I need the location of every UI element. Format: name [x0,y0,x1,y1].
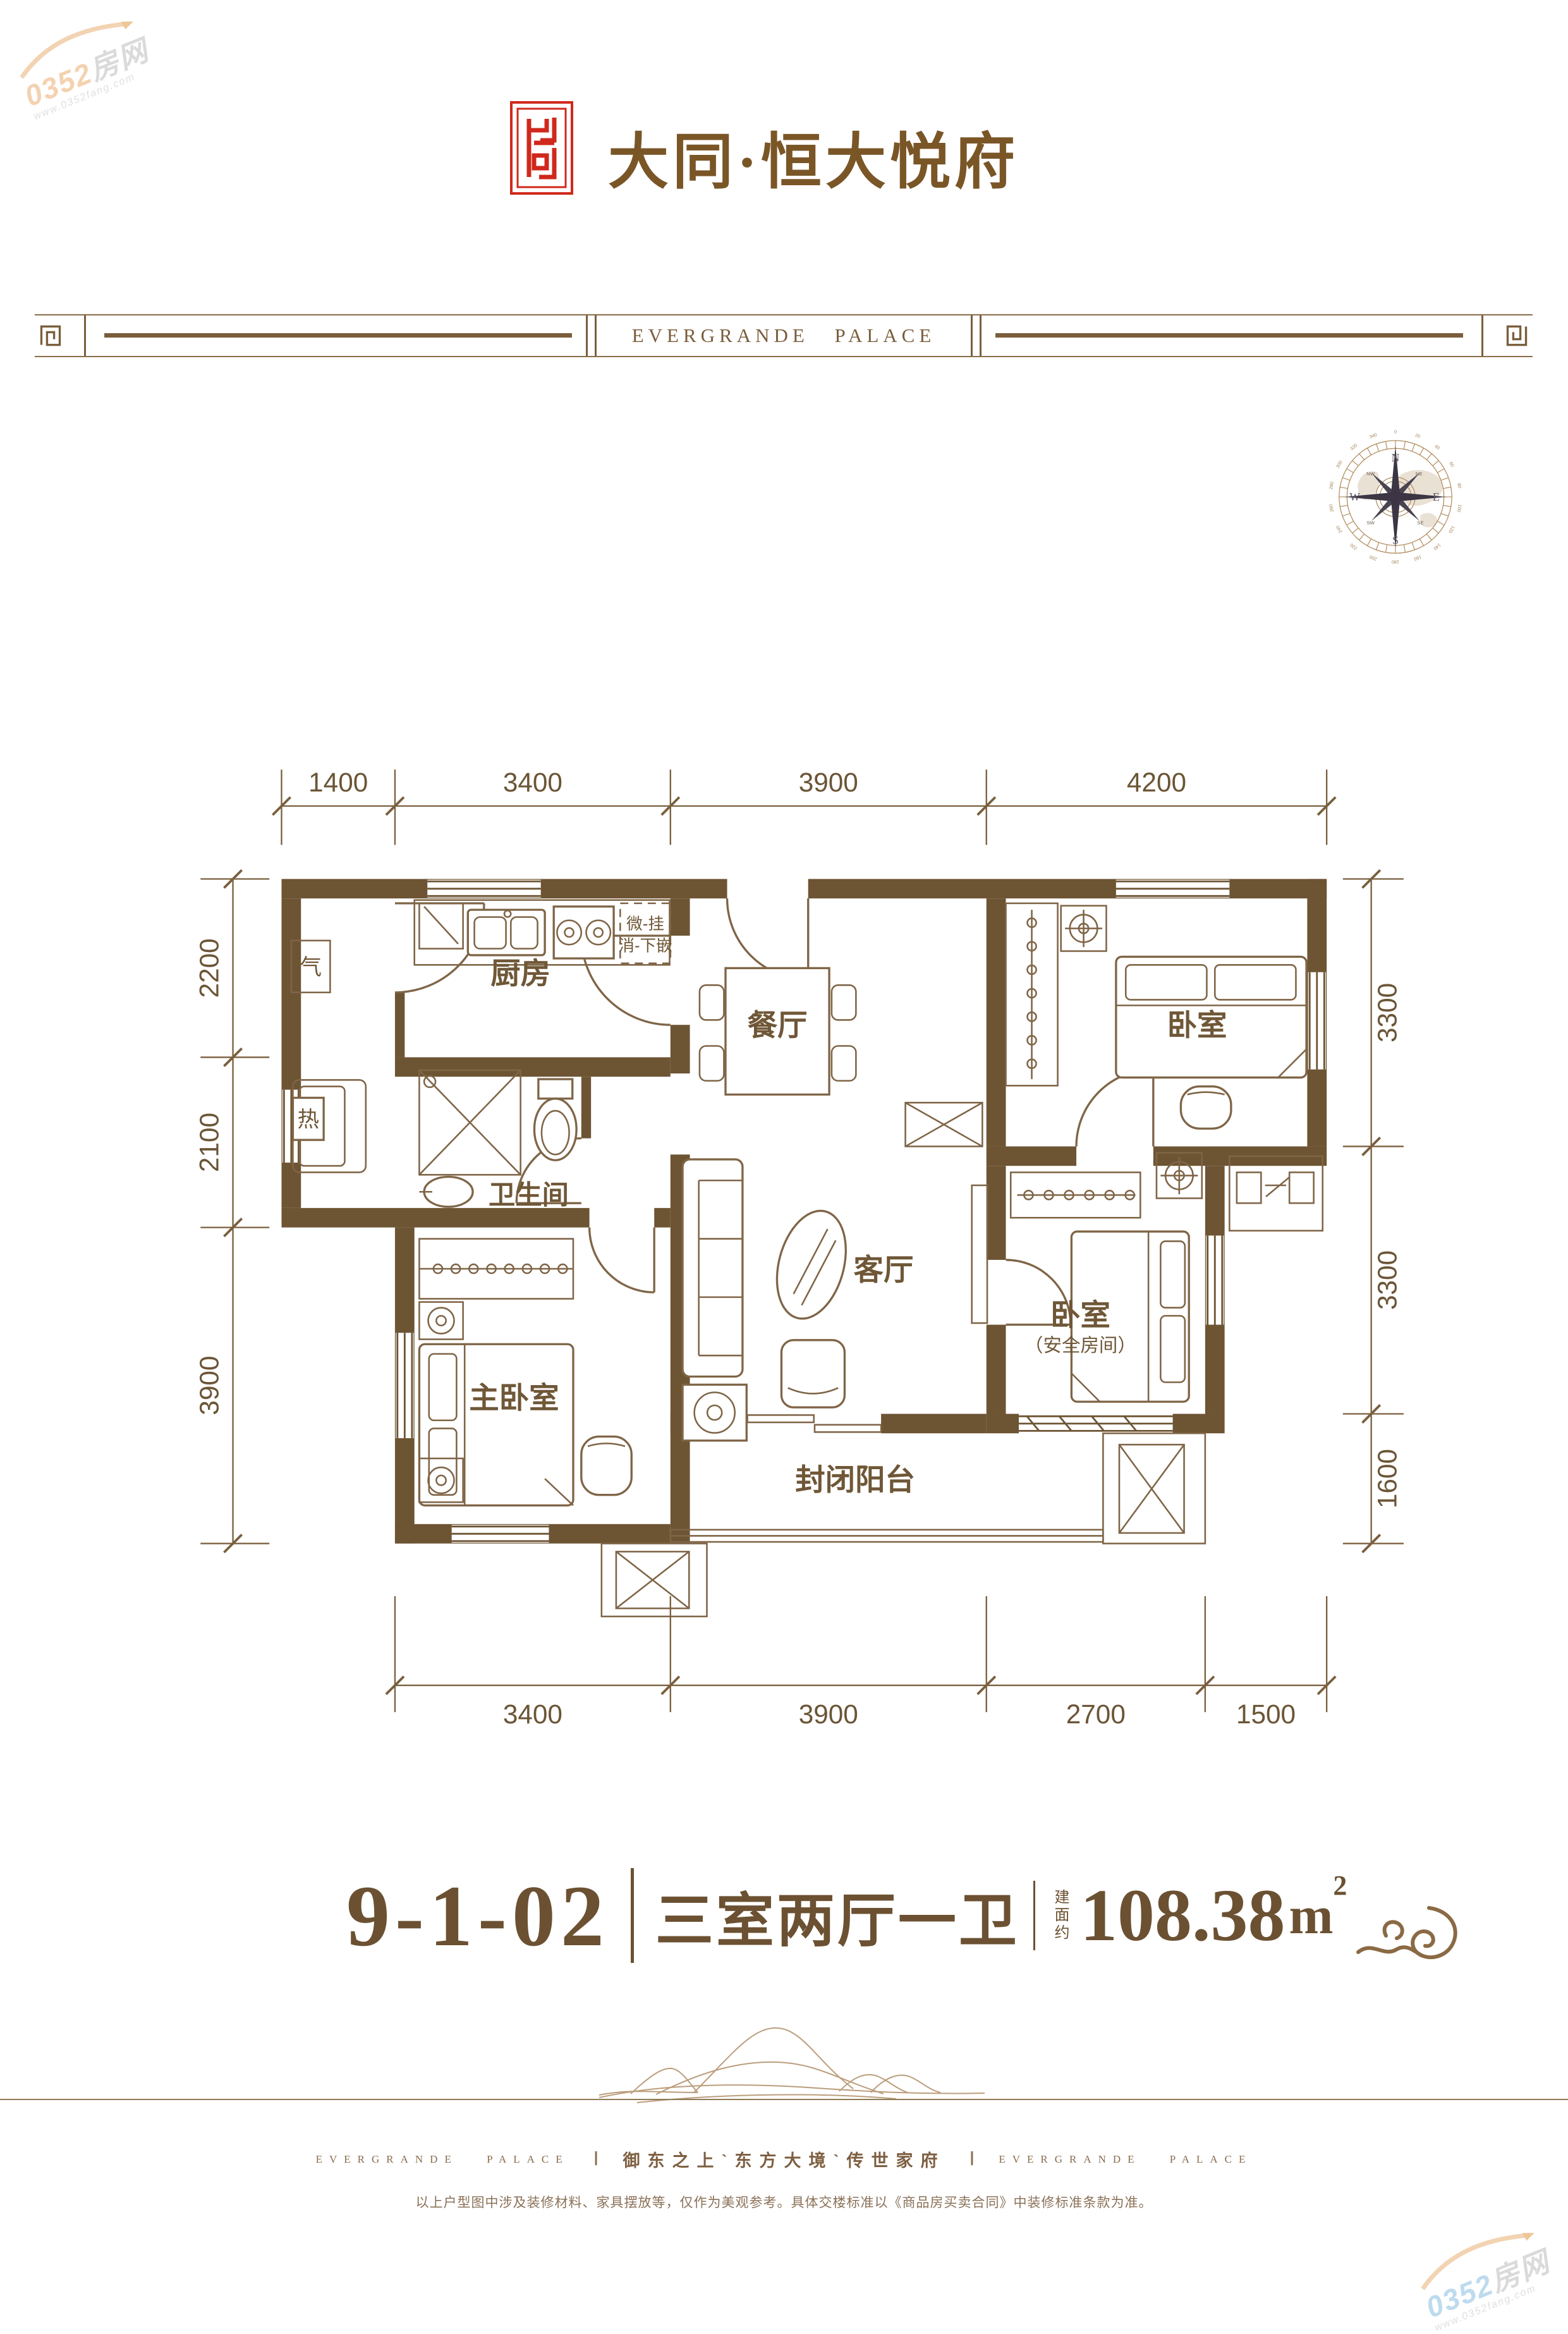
dim-top-2: 3400 [503,767,562,797]
living-furniture [683,1159,987,1441]
footer-brand-line: EVERGRANDE PALACE Ⅰ 御东之上ˋ东方大境ˋ传世家府 Ⅰ EVE… [0,2147,1568,2172]
area-prefix: 建面约 [1049,1889,1071,1942]
svg-text:200: 200 [1369,554,1378,563]
band-rule-right [995,333,1463,338]
fixture-label-sterilizer: 消-下嵌 [618,936,672,955]
compass-rose-icon: 0204060801001201401601802002202402602803… [1323,425,1468,569]
svg-text:0: 0 [1394,429,1397,434]
fret-ornament-icon [1505,324,1529,348]
dim-bottom-4: 1500 [1236,1699,1296,1729]
svg-text:60: 60 [1448,461,1456,468]
band-divider [595,315,597,356]
dim-left-1: 2200 [194,938,224,998]
dim-left-2: 2100 [194,1113,224,1172]
svg-text:340: 340 [1369,432,1378,440]
title-divider [631,1868,634,1963]
unit-title-block: 9-1-02 三室两厅一卫 建面约 108.38 m 2 [346,1849,1473,1982]
svg-text:20: 20 [1414,432,1421,439]
area-unit: m [1289,1885,1333,1946]
compass-nw: NW [1366,471,1375,477]
compass-se: SE [1417,520,1423,526]
svg-text:240: 240 [1335,525,1344,534]
compass-e: E [1433,491,1440,503]
room-label-living: 客厅 [854,1254,914,1287]
dining-furniture [700,968,982,1146]
band-divider [971,315,973,356]
brand-seal-icon [510,101,573,195]
compass-s: S [1392,534,1399,547]
mountain-art-icon [542,2018,1023,2106]
room-label-kitchen: 厨房 [490,957,550,991]
dim-bottom-2: 3900 [799,1699,858,1729]
fixture-label-heater: 热 [297,1108,319,1132]
footer-divider: Ⅰ [593,2148,599,2170]
decorative-band: EVERGRANDE PALACE [35,314,1533,357]
floorplan-poster: { "colors": { "wall_brown": "#6d5433", "… [0,0,1568,2321]
svg-text:100: 100 [1456,504,1463,512]
dim-top-3: 3900 [799,767,858,797]
room-label-safe-bedroom: 卧室 [1050,1299,1110,1333]
room-label-bedroom: 卧室 [1167,1009,1227,1042]
dim-bottom-3: 2700 [1066,1699,1126,1729]
band-divider [84,315,86,356]
compass-w: W [1349,491,1360,503]
watermark-top-left: 0352房网 www.0352fang.com [9,4,160,123]
dim-right-1: 3300 [1372,983,1402,1042]
svg-text:260: 260 [1328,504,1335,512]
unit-layout: 三室两厅一卫 [655,1874,1019,1958]
area-unit-sup: 2 [1333,1869,1347,1902]
room-label-balcony: 封闭阳台 [795,1463,915,1497]
band-divider [586,315,588,356]
cloud-ornament-icon [1353,1897,1473,1972]
title-divider-thin [1033,1881,1035,1950]
disclaimer-text: 以上户型图中涉及装修材料、家具摆放等，仅作为美观参考。具体交楼标准以《商品房买卖… [0,2192,1568,2211]
svg-text:220: 220 [1349,542,1358,552]
svg-text:300: 300 [1335,460,1344,469]
footer-brand-right: EVERGRANDE PALACE [999,2153,1252,2166]
bedroom-safe-furniture [1011,1153,1202,1402]
svg-text:160: 160 [1413,554,1422,563]
svg-text:320: 320 [1349,443,1358,452]
band-divider [1481,315,1483,356]
compass-ne: NE [1416,471,1423,477]
svg-text:40: 40 [1433,443,1441,451]
footer-slogan: 御东之上ˋ东方大境ˋ传世家府 [623,2147,945,2172]
svg-text:180: 180 [1392,559,1399,565]
room-label-dining: 餐厅 [748,1009,808,1042]
svg-text:140: 140 [1433,542,1442,552]
dim-right-3: 1600 [1372,1449,1402,1508]
room-label-safe-bedroom-sub: （安全房间） [1024,1335,1136,1356]
watermark-bottom-right: 0352房网 www.0352fang.com [1410,2216,1561,2334]
bedroom-top-furniture [1006,903,1307,1128]
dim-right-2: 3300 [1372,1250,1402,1310]
band-rule-left [104,333,572,338]
svg-text:80: 80 [1456,482,1462,489]
footer-divider: Ⅰ [969,2148,975,2170]
fret-ornament-icon [39,324,63,348]
dim-top-1: 1400 [308,767,368,797]
band-title: EVERGRANDE PALACE [608,315,960,356]
svg-text:120: 120 [1447,525,1456,534]
unit-number: 9-1-02 [346,1866,609,1966]
fixture-label-gas: 气 [300,956,322,980]
area-value: 108.38 [1080,1873,1285,1958]
compass-n: N [1392,451,1400,464]
dim-top-4: 4200 [1127,767,1186,797]
room-label-bath: 卫生间 [489,1180,569,1209]
ground-divider [0,2099,1568,2100]
floor-plan: 厨房 餐厅 卧室 卫生间 客厅 主卧室 卧室 （安全房间） 封闭阳台 气 热 微… [168,757,1424,1754]
fixture-label-microwave: 微-挂 [626,915,664,933]
band-divider [980,315,982,356]
svg-text:280: 280 [1328,481,1335,489]
master-bedroom-furniture [419,1239,631,1506]
footer-brand-left: EVERGRANDE PALACE [316,2153,569,2166]
dim-left-3: 3900 [194,1356,224,1415]
dim-bottom-1: 3400 [503,1699,562,1729]
page-title: 大同·恒大悦府 [608,113,1114,200]
room-label-master: 主卧室 [469,1382,559,1415]
compass-sw: SW [1366,520,1375,526]
kitchen-fixtures [291,900,671,1173]
